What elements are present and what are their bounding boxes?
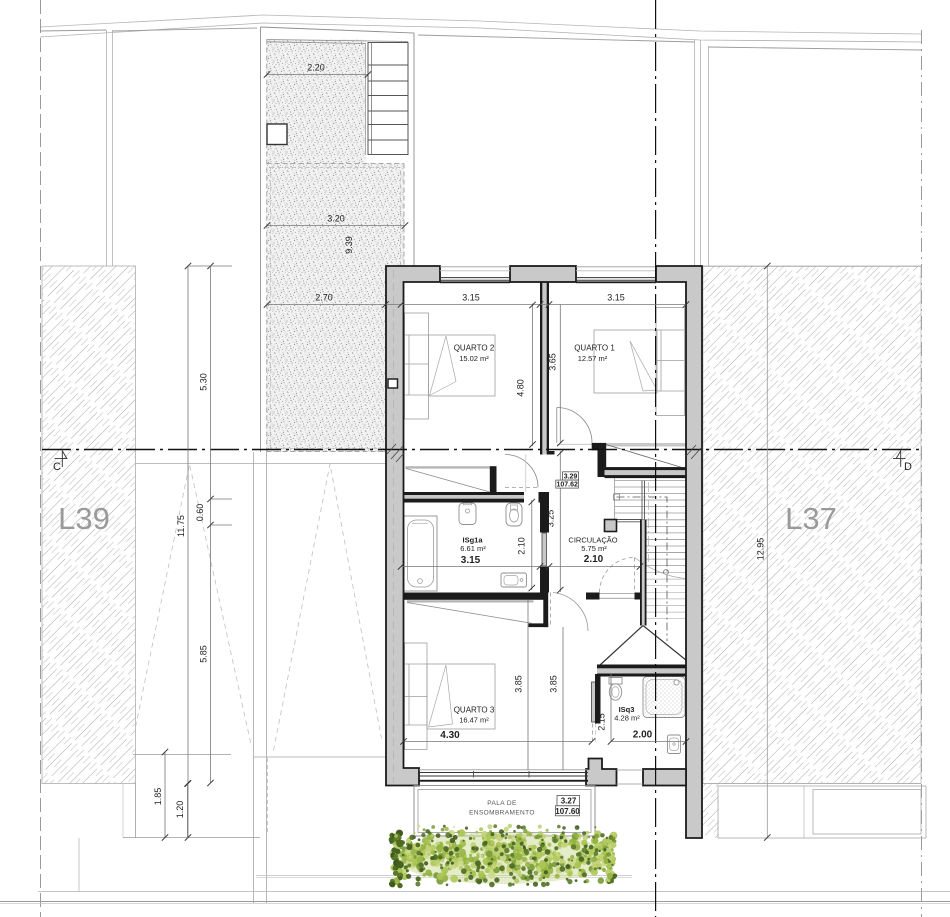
svg-text:3.27: 3.27 <box>561 797 577 806</box>
svg-text:3.15: 3.15 <box>461 555 481 566</box>
svg-text:3.20: 3.20 <box>327 214 345 224</box>
svg-text:5.85: 5.85 <box>199 645 209 663</box>
svg-text:3.85: 3.85 <box>549 675 559 693</box>
svg-text:1.85: 1.85 <box>153 788 163 806</box>
svg-text:PALA DE: PALA DE <box>487 800 517 807</box>
svg-text:C: C <box>53 461 61 473</box>
svg-text:3.15: 3.15 <box>462 293 480 303</box>
svg-text:2.15: 2.15 <box>597 713 607 731</box>
svg-text:2.10: 2.10 <box>517 537 527 555</box>
svg-text:15.02 m²: 15.02 m² <box>459 354 489 363</box>
svg-text:3.15: 3.15 <box>607 293 625 303</box>
svg-text:4.30: 4.30 <box>440 730 460 741</box>
svg-text:107.62: 107.62 <box>556 482 578 489</box>
svg-text:3.25: 3.25 <box>546 510 556 528</box>
svg-text:QUARTO 2: QUARTO 2 <box>454 344 495 353</box>
svg-text:11.75: 11.75 <box>176 515 186 537</box>
svg-text:L37: L37 <box>785 501 837 536</box>
svg-text:0.60: 0.60 <box>195 504 205 522</box>
svg-text:5.75 m²: 5.75 m² <box>581 544 607 553</box>
svg-text:5.30: 5.30 <box>199 373 209 391</box>
svg-text:12.95: 12.95 <box>756 538 766 561</box>
svg-text:D: D <box>904 461 912 473</box>
svg-text:9.39: 9.39 <box>344 236 354 254</box>
svg-text:QUARTO 3: QUARTO 3 <box>454 706 495 715</box>
svg-text:ENSOMBRAMENTO: ENSOMBRAMENTO <box>469 810 535 817</box>
svg-text:4.80: 4.80 <box>516 379 526 397</box>
svg-text:3.85: 3.85 <box>514 675 524 693</box>
svg-text:16.47 m²: 16.47 m² <box>459 716 489 725</box>
svg-text:2.00: 2.00 <box>633 730 653 741</box>
svg-text:3.29: 3.29 <box>564 473 578 480</box>
svg-text:2.10: 2.10 <box>584 554 604 565</box>
svg-text:L39: L39 <box>58 501 110 536</box>
svg-text:4.28 m²: 4.28 m² <box>614 714 640 723</box>
svg-text:1.20: 1.20 <box>175 801 185 819</box>
svg-text:3.65: 3.65 <box>548 353 558 371</box>
svg-text:2.20: 2.20 <box>307 63 325 73</box>
svg-text:6.61 m²: 6.61 m² <box>460 544 486 553</box>
svg-text:12.57 m²: 12.57 m² <box>578 354 608 363</box>
svg-text:2.70: 2.70 <box>315 293 333 303</box>
svg-text:QUARTO 1: QUARTO 1 <box>574 344 615 353</box>
svg-text:107.60: 107.60 <box>555 807 580 816</box>
